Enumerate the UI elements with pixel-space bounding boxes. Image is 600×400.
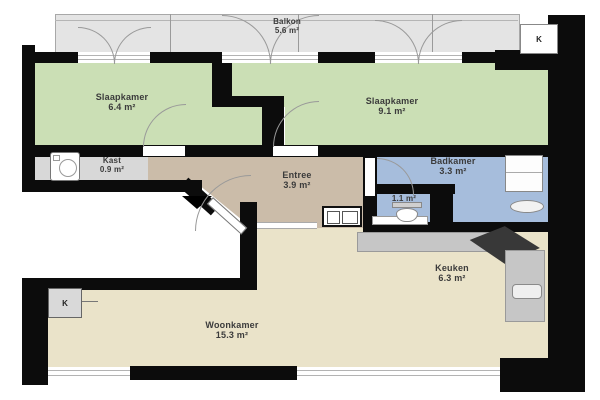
room-area: 6.3 m² <box>435 273 469 283</box>
kitchen-counter-top <box>357 232 490 252</box>
room-label-balkon: Balkon 5.6 m² <box>273 17 301 35</box>
room-label-entree: Entree 3.9 m² <box>282 170 311 190</box>
wall-bedroom-divider-h <box>212 96 264 107</box>
washing-machine-icon <box>50 152 80 181</box>
room-name: Slaapkamer <box>366 96 419 106</box>
room-label-slaapkamer-1: Slaapkamer 6.4 m² <box>96 92 149 112</box>
room-name: Entree <box>282 170 311 180</box>
meter-cabinet-icon <box>322 206 362 227</box>
shaft-left-line <box>82 301 98 302</box>
room-label-kast: Kast 0.9 m² <box>100 156 124 174</box>
room-area: 9.1 m² <box>366 106 419 116</box>
balcony-door-window <box>222 52 318 63</box>
balcony-door-window <box>375 52 462 63</box>
washbasin-icon <box>510 200 544 213</box>
window-bottom-right <box>297 367 500 379</box>
room-name: Kast <box>100 156 124 165</box>
window-bottom-left <box>48 367 130 379</box>
shaft-box-left: K <box>48 288 82 318</box>
wall-closet-bottom <box>22 180 202 192</box>
room-area: 15.3 m² <box>205 330 258 340</box>
shower-icon <box>505 155 543 192</box>
entrance-arrow-icon <box>182 196 212 209</box>
shaft-label: K <box>536 35 542 44</box>
balcony-door-window <box>78 52 150 63</box>
shaft-box-top-right: K <box>520 24 558 54</box>
floor-plan: K K Balkon 5.6 m² Slaapk <box>0 0 600 400</box>
room-name: Badkamer <box>430 156 475 166</box>
room-label-keuken: Keuken 6.3 m² <box>435 263 469 283</box>
room-area: 3.9 m² <box>282 180 311 190</box>
threshold-living <box>257 222 317 229</box>
wall-right <box>548 15 585 392</box>
bedroom1-floor-annex <box>200 107 262 145</box>
room-name: Balkon <box>273 17 301 26</box>
room-label-badkamer: Badkamer 3.3 m² <box>430 156 475 176</box>
shaft-label: K <box>62 299 68 308</box>
wall-left-lower <box>22 278 48 385</box>
wall-entree-stub <box>240 202 257 290</box>
bedroom1-door-gap <box>143 146 185 156</box>
wall-left-upper <box>22 45 35 192</box>
room-area: 0.9 m² <box>100 165 124 174</box>
room-label-woonkamer: Woonkamer 15.3 m² <box>205 320 258 340</box>
room-area: 1.1 m² <box>392 194 416 203</box>
kitchen-sink-icon <box>512 284 542 299</box>
room-name: Keuken <box>435 263 469 273</box>
bedroom2-door-gap <box>273 146 318 156</box>
bathroom-door-gap <box>365 158 375 196</box>
room-name: Slaapkamer <box>96 92 149 102</box>
room-area: 6.4 m² <box>96 102 149 112</box>
room-area: 5.6 m² <box>273 26 301 35</box>
room-label-toilet: 1.1 m² <box>392 194 416 203</box>
room-name: Woonkamer <box>205 320 258 330</box>
room-label-slaapkamer-2: Slaapkamer 9.1 m² <box>366 96 419 116</box>
room-area: 3.3 m² <box>430 166 475 176</box>
wall-bottom-mid <box>130 366 297 380</box>
